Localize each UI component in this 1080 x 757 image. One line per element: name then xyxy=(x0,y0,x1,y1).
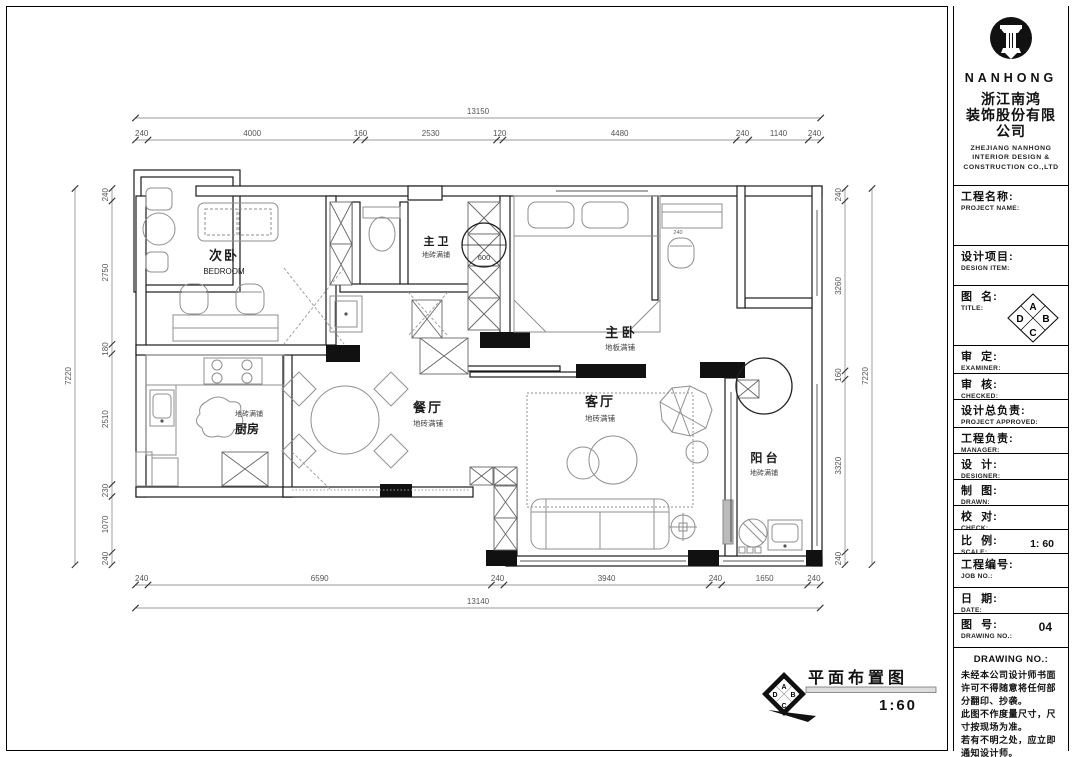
notice-title: DRAWING NO.: xyxy=(961,654,1061,665)
field-check: 校 对: CHECK: xyxy=(954,506,1068,530)
svg-text:B: B xyxy=(790,692,795,699)
room-sublabel-dining: 地砖满铺 xyxy=(413,418,443,428)
field-examiner: 审 定: EXAMINER: xyxy=(954,346,1068,374)
field-project-name: 工程名称: PROJECT NAME: xyxy=(954,186,1068,246)
svg-text:1070: 1070 xyxy=(101,515,110,533)
drawing-sheet: 13150 240 4000 160 2530 120 4480 240 114… xyxy=(0,0,1080,757)
svg-text:C: C xyxy=(1029,328,1036,339)
closet-hall xyxy=(468,202,500,330)
svg-text:2750: 2750 xyxy=(101,263,110,281)
field-designer: 设 计: DESIGNER: xyxy=(954,454,1068,480)
washing-machine xyxy=(739,519,767,547)
company-name-en: ZHEJIANG NANHONG INTERIOR DESIGN & CONST… xyxy=(961,144,1061,172)
field-title: 图 名: TITLE: A B C D xyxy=(954,286,1068,346)
room-label-kitchen: 厨房 xyxy=(235,421,259,436)
fridge-kitchen xyxy=(222,452,268,486)
room-sublabel-master-bath: 地砖满铺 xyxy=(422,250,450,259)
room-sublabel-secondary-bedroom: BEDROOM xyxy=(203,267,245,276)
columns-layer xyxy=(326,332,822,566)
nanhong-logo-icon xyxy=(987,16,1035,62)
dining-table xyxy=(311,386,379,454)
svg-text:240: 240 xyxy=(101,187,110,201)
scale-value: 1: 60 xyxy=(1030,538,1054,550)
field-job-no: 工程编号: JOB NO.: xyxy=(954,554,1068,588)
room-sublabel-living: 地砖满铺 xyxy=(585,413,615,423)
wardrobe-secondary-bedroom xyxy=(330,202,352,285)
annotation-600: 600 xyxy=(478,253,491,262)
drawing-no-value: 04 xyxy=(1039,620,1052,634)
shoe-cabinet-hall xyxy=(412,300,468,374)
svg-text:3320: 3320 xyxy=(834,456,843,474)
title-diamond-symbol: A B C D xyxy=(1006,292,1060,344)
svg-text:240: 240 xyxy=(807,574,821,583)
footer-title-group: A B C D 平面布置图 1:60 xyxy=(762,668,936,722)
footer-drawing-title: 平面布置图 xyxy=(808,668,908,687)
copyright-notice: DRAWING NO.: 未经本公司设计师书面 许可不得随意将任何部 分翻印、抄… xyxy=(954,648,1068,757)
coffee-table xyxy=(589,436,637,484)
svg-text:240: 240 xyxy=(808,129,822,138)
room-label-living: 客厅 xyxy=(585,394,615,409)
svg-text:C: C xyxy=(781,703,786,710)
living-rug xyxy=(527,393,693,507)
svg-text:1650: 1650 xyxy=(756,574,774,583)
field-drawing-no: 图 号: DRAWING NO.: 04 xyxy=(954,614,1068,648)
svg-text:180: 180 xyxy=(101,342,110,356)
svg-text:240: 240 xyxy=(135,129,149,138)
dresser-master xyxy=(662,204,722,228)
company-header: NANHONG 浙江南鸿 装饰股份有限公司 ZHEJIANG NANHONG I… xyxy=(954,6,1068,186)
svg-text:1140: 1140 xyxy=(770,129,788,138)
svg-text:240: 240 xyxy=(834,187,843,201)
floor-lamp xyxy=(669,513,697,541)
title-block: NANHONG 浙江南鸿 装饰股份有限公司 ZHEJIANG NANHONG I… xyxy=(947,6,1074,751)
dining-chair xyxy=(374,372,408,406)
pillow xyxy=(582,202,628,228)
footer-title-underline xyxy=(806,687,936,693)
svg-text:D: D xyxy=(1016,314,1023,325)
svg-text:120: 120 xyxy=(493,129,507,138)
room-sublabel-master-bedroom: 地板满铺 xyxy=(605,342,635,352)
bed-master xyxy=(514,196,660,332)
annotation-240: 240 xyxy=(673,230,682,236)
dim-right-overall: 7220 xyxy=(861,367,870,385)
svg-text:4480: 4480 xyxy=(611,129,629,138)
alcove-basin xyxy=(143,213,175,245)
svg-text:4000: 4000 xyxy=(243,129,261,138)
balcony-sink xyxy=(768,520,802,550)
room-sublabel-kitchen: 地砖满铺 xyxy=(235,409,263,418)
field-date: 日 期: DATE: xyxy=(954,588,1068,614)
svg-text:3260: 3260 xyxy=(834,277,843,295)
room-label-master-bedroom: 主 卧 xyxy=(605,325,635,340)
footer-scale: 1:60 xyxy=(879,697,917,714)
pillow xyxy=(528,202,574,228)
field-drawn: 制 图: DRAWN: xyxy=(954,480,1068,506)
svg-text:B: B xyxy=(1042,314,1049,325)
svg-text:240: 240 xyxy=(834,551,843,565)
balcony-corner-cabinet xyxy=(737,380,759,398)
floor-plan-drawing: 13150 240 4000 160 2530 120 4480 240 114… xyxy=(0,0,1080,757)
field-design-item: 设计项目: DESIGN ITEM: xyxy=(954,246,1068,286)
svg-text:D: D xyxy=(772,692,777,699)
alcove-fixture xyxy=(146,188,172,210)
room-label-balcony: 阳 台 xyxy=(750,450,777,465)
svg-text:3940: 3940 xyxy=(598,574,616,583)
svg-text:2510: 2510 xyxy=(101,410,110,428)
dim-bottom-overall: 13140 xyxy=(467,597,490,606)
dim-top-overall: 13150 xyxy=(467,107,490,116)
room-label-dining: 餐厅 xyxy=(412,400,443,415)
svg-text:A: A xyxy=(1029,302,1036,313)
svg-text:240: 240 xyxy=(135,574,149,583)
svg-text:160: 160 xyxy=(834,368,843,382)
svg-text:240: 240 xyxy=(709,574,723,583)
chair xyxy=(180,284,208,314)
svg-text:A: A xyxy=(781,684,786,691)
svg-text:240: 240 xyxy=(491,574,505,583)
svg-text:240: 240 xyxy=(736,129,750,138)
coffee-table-small xyxy=(567,447,599,479)
svg-text:240: 240 xyxy=(101,551,110,565)
toilet xyxy=(369,217,395,251)
room-sublabel-balcony: 地砖满铺 xyxy=(750,468,778,477)
room-label-master-bath: 主 卫 xyxy=(423,234,448,248)
field-scale: 比 例: SCALE: 1: 60 xyxy=(954,530,1068,554)
plant xyxy=(660,386,712,436)
field-manager: 工程负责: MANAGER: xyxy=(954,428,1068,454)
toilet-tank xyxy=(363,207,400,218)
dining-chair xyxy=(374,434,408,468)
svg-text:6590: 6590 xyxy=(311,574,329,583)
svg-text:230: 230 xyxy=(101,483,110,497)
side-table xyxy=(686,441,708,463)
field-checked: 审 核: CHECKED: xyxy=(954,374,1068,400)
room-label-secondary-bedroom: 次卧 xyxy=(209,248,239,263)
company-name-cn: 浙江南鸿 装饰股份有限公司 xyxy=(961,91,1061,139)
entry-cabinet-living xyxy=(470,467,517,550)
svg-text:160: 160 xyxy=(354,129,368,138)
svg-text:2530: 2530 xyxy=(422,129,440,138)
field-project-approved: 设计总负责: PROJECT APPROVED: xyxy=(954,400,1068,428)
logo-text: NANHONG xyxy=(961,71,1061,85)
stool-master xyxy=(668,238,694,268)
dim-left-overall: 7220 xyxy=(64,367,73,385)
